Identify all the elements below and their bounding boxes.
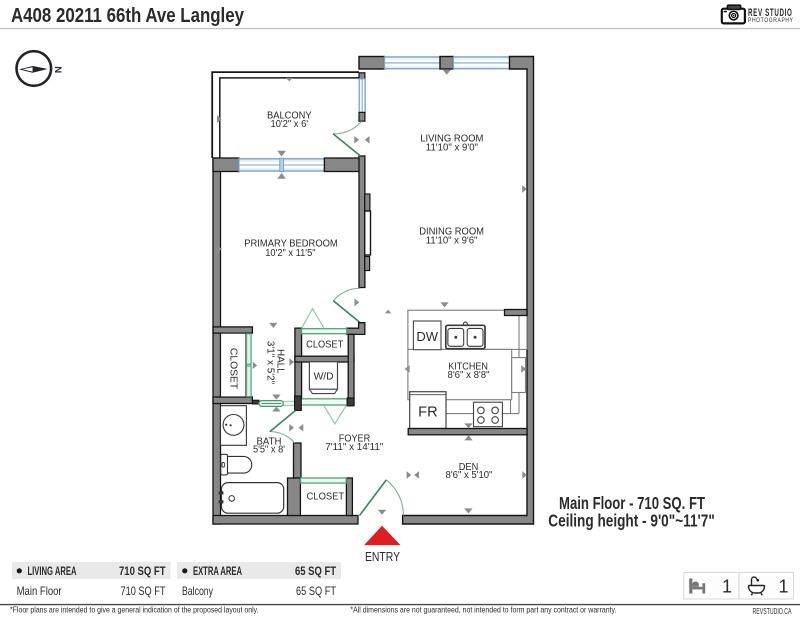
svg-text:CLOSET: CLOSET: [306, 340, 344, 351]
svg-text:EXTRA AREA: EXTRA AREA: [193, 564, 242, 578]
svg-text:Ceiling height - 9'0"~11'7": Ceiling height - 9'0"~11'7": [548, 511, 715, 531]
svg-text:710 SQ FT: 710 SQ FT: [121, 584, 167, 598]
svg-text:1: 1: [722, 577, 732, 597]
svg-text:PHOTOGRAPHY: PHOTOGRAPHY: [748, 17, 794, 24]
svg-text:11'10" x 9'0": 11'10" x 9'0": [426, 143, 479, 154]
svg-text:CLOSET: CLOSET: [307, 492, 345, 503]
svg-text:CLOSET: CLOSET: [227, 348, 238, 390]
svg-text:FR: FR: [418, 405, 437, 421]
svg-text:REVSTUDIO.CA: REVSTUDIO.CA: [753, 607, 792, 616]
svg-text:*Floor plans are intended to g: *Floor plans are intended to give a gene…: [10, 605, 259, 614]
svg-text:*All dimensions are not guaran: *All dimensions are not guaranteed, not …: [350, 605, 616, 614]
svg-text:8'6" x 8'8": 8'6" x 8'8": [448, 370, 491, 381]
svg-text:DW: DW: [416, 329, 438, 344]
svg-text:710 SQ FT: 710 SQ FT: [119, 564, 166, 578]
svg-text:A408 20211 66th Ave Langley: A408 20211 66th Ave Langley: [11, 4, 244, 27]
svg-text:10'2" x 11'5": 10'2" x 11'5": [265, 248, 316, 259]
svg-text:11'10" x 9'6": 11'10" x 9'6": [426, 236, 478, 247]
svg-text:N: N: [52, 66, 63, 73]
svg-text:10'2" x 6': 10'2" x 6': [271, 119, 309, 130]
svg-text:Balcony: Balcony: [182, 584, 213, 598]
svg-text:8'6" x 5'10": 8'6" x 5'10": [446, 470, 493, 481]
svg-text:65 SQ FT: 65 SQ FT: [296, 584, 337, 598]
svg-text:ENTRY: ENTRY: [365, 550, 401, 564]
svg-text:7'11" x 14'11": 7'11" x 14'11": [325, 442, 384, 453]
svg-text:1: 1: [778, 577, 788, 597]
svg-text:5'5" x 8': 5'5" x 8': [253, 444, 285, 455]
svg-text:LIVING AREA: LIVING AREA: [28, 564, 77, 578]
svg-text:W/D: W/D: [314, 372, 334, 383]
svg-text:Main Floor: Main Floor: [17, 584, 62, 598]
svg-text:65 SQ FT: 65 SQ FT: [295, 564, 337, 578]
